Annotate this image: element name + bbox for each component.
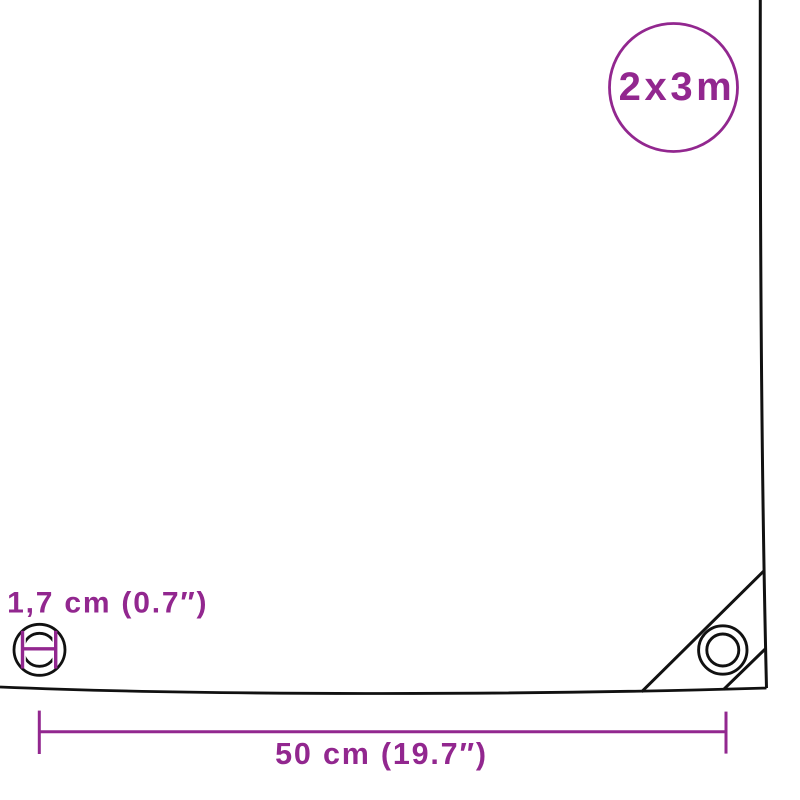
svg-text:1,7 cm (0.7″): 1,7 cm (0.7″) — [7, 587, 208, 620]
svg-text:2x3m: 2x3m — [619, 65, 736, 109]
svg-text:50 cm (19.7″): 50 cm (19.7″) — [275, 737, 488, 771]
